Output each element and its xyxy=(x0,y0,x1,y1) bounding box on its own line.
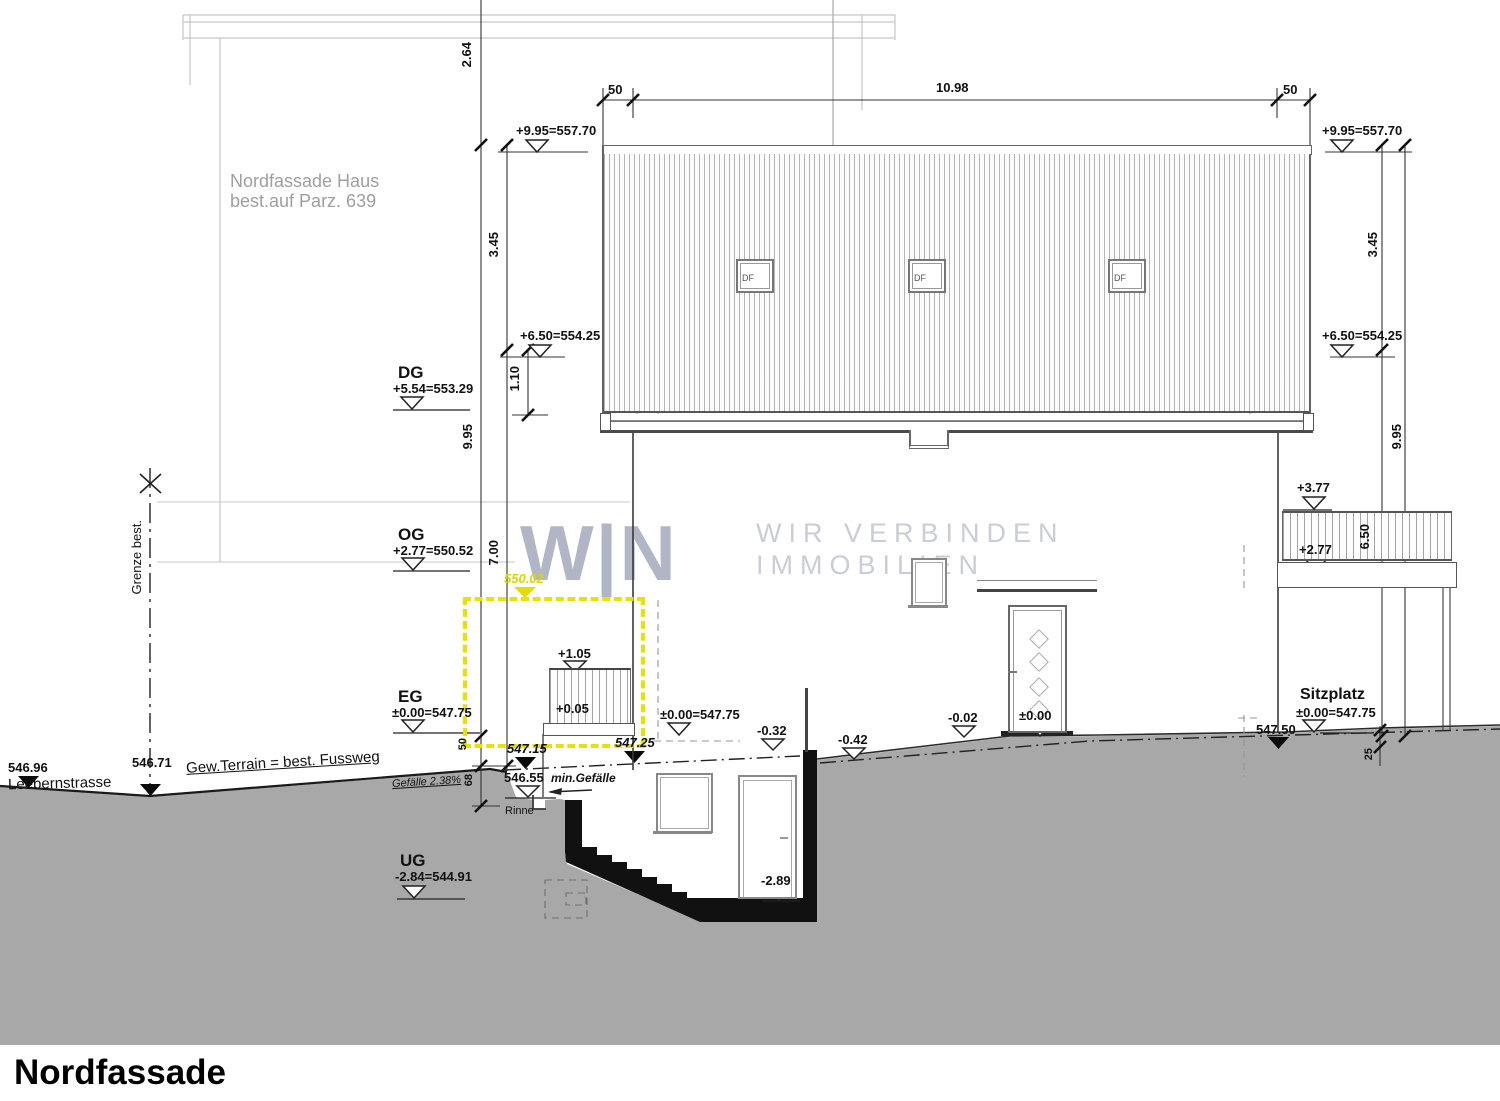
marker-54671: 546.71 xyxy=(132,756,172,770)
marker-105: +1.05 xyxy=(558,647,591,661)
marker-650-right: +6.50=554.25 xyxy=(1322,329,1402,343)
roof-window-df-1: DF xyxy=(736,259,774,293)
highlight-elevation: 550.02 xyxy=(504,572,544,586)
marker-995-left: +9.95=557.70 xyxy=(516,124,596,138)
basement-window xyxy=(656,773,713,833)
dim-700: 7.00 xyxy=(487,540,501,565)
level-dg-value: +5.54=553.29 xyxy=(393,382,473,396)
dim-264: 2.64 xyxy=(460,42,474,67)
level-ug-value: -2.84=544.91 xyxy=(395,870,472,884)
highlight-revision-box xyxy=(463,597,645,748)
marker-377: +3.77 xyxy=(1297,481,1330,495)
stair-pit-post xyxy=(805,688,808,752)
dim-345-right: 3.45 xyxy=(1366,232,1380,257)
marker-650-left: +6.50=554.25 xyxy=(520,329,600,343)
marker-54715: 547.15 xyxy=(507,742,547,756)
rinne-label: Rinne xyxy=(505,806,534,818)
grenze-boundary-line xyxy=(140,468,161,795)
roof-fascia-endcap-right xyxy=(1303,413,1314,431)
level-og-value: +2.77=550.52 xyxy=(393,544,473,558)
level-ug-label: UG xyxy=(400,852,426,870)
marker-pm000-door: ±0.00 xyxy=(1019,709,1051,723)
slope-arrow xyxy=(548,788,592,795)
dim-995-left: 9.95 xyxy=(461,424,475,449)
stair-window-sill xyxy=(908,605,948,608)
level-og-label: OG xyxy=(398,526,424,544)
df-label: DF xyxy=(742,273,754,283)
roof-window-df-2: DF xyxy=(908,259,946,293)
dim-345-left: 3.45 xyxy=(487,232,501,257)
marker-m289: -2.89 xyxy=(761,874,791,888)
level-eg-label: EG xyxy=(398,688,423,706)
marker-m002: -0.02 xyxy=(948,711,978,725)
marker-277: +2.77 xyxy=(1299,543,1332,557)
dim-68: 68 xyxy=(464,774,476,786)
marker-995-right: +9.95=557.70 xyxy=(1322,124,1402,138)
marker-005: +0.05 xyxy=(556,702,589,716)
dim-110: 1.10 xyxy=(508,366,522,391)
stair-window xyxy=(911,558,947,607)
drawing-title: Nordfassade xyxy=(14,1053,226,1093)
marker-54750: 547.50 xyxy=(1256,723,1296,737)
door-handle xyxy=(1008,671,1017,673)
marker-m032: -0.32 xyxy=(757,724,787,738)
sitzplatz-level: ±0.00=547.75 xyxy=(1296,706,1376,720)
dim-25: 25 xyxy=(1364,748,1376,760)
neighbor-label-line2: best.auf Parz. 639 xyxy=(230,192,376,211)
roof-eave-band xyxy=(603,414,1310,421)
stair-pit-right-wall xyxy=(803,750,817,922)
street-label: Leebernstrasse xyxy=(8,775,112,793)
marker-pm000-center: ±0.00=547.75 xyxy=(660,708,740,722)
marker-min-gefaelle: min.Gefälle xyxy=(551,772,616,785)
balcony-slab xyxy=(1277,562,1457,588)
level-dg-label: DG xyxy=(398,364,424,382)
marker-54696: 546.96 xyxy=(8,761,48,775)
marker-54655: 546.55 xyxy=(504,771,544,785)
dim-995-right: 9.95 xyxy=(1390,424,1404,449)
roof-surface xyxy=(604,154,1309,413)
entrance-canopy xyxy=(977,580,1097,592)
dim-650: 6.50 xyxy=(1358,524,1372,549)
dim-50-v: 50 xyxy=(458,738,470,750)
elevation-drawing: W|N WIR VERBINDEN IMMOBILIEN xyxy=(0,0,1500,1101)
basement-door-handle xyxy=(780,837,788,839)
roof-fascia-endcap-left xyxy=(600,413,611,431)
grenze-label: Grenze best. xyxy=(130,520,144,594)
marker-54725: 547.25 xyxy=(615,736,655,750)
roof-fascia xyxy=(600,421,1313,433)
level-eg-value: ±0.00=547.75 xyxy=(392,706,472,720)
marker-m042: -0.42 xyxy=(838,733,868,747)
df-label: DF xyxy=(1114,273,1126,283)
eave-vent xyxy=(909,430,949,449)
sitzplatz-label: Sitzplatz xyxy=(1300,687,1365,704)
dim-1098: 10.98 xyxy=(936,81,969,95)
neighbor-label-line1: Nordfassade Haus xyxy=(230,172,379,191)
dim-50-right: 50 xyxy=(1283,83,1297,97)
df-label: DF xyxy=(914,273,926,283)
roof-window-df-3: DF xyxy=(1108,259,1146,293)
dim-50-left: 50 xyxy=(608,83,622,97)
basement-window-sill xyxy=(653,831,712,834)
